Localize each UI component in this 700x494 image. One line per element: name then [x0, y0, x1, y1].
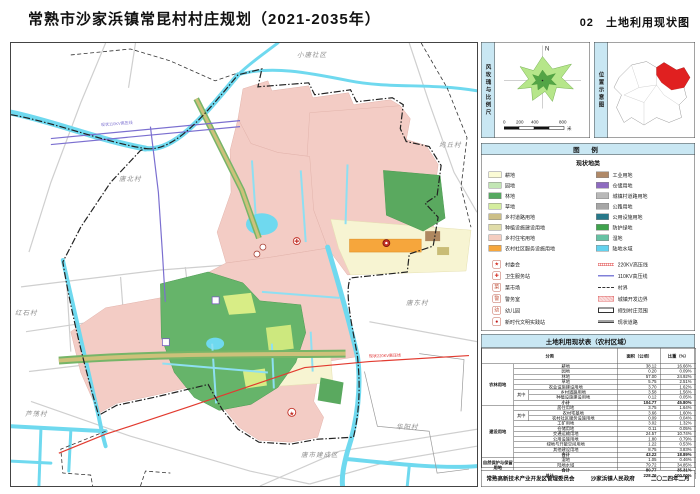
legend-marker-item: ✚ 卫生服务站 [493, 270, 546, 282]
legend-swatch [489, 193, 502, 200]
legend-line-symbol [598, 308, 614, 314]
wind-rose: N [495, 43, 590, 116]
legend-line-item: 城镇开发边界 [598, 293, 688, 305]
legend-marker-label: 警务室 [505, 295, 520, 303]
map-label: 唐市建成区 [301, 449, 339, 459]
legend-swatch [596, 214, 609, 221]
legend-item: 种植设施建设用地 [489, 222, 581, 233]
legend-line-label: 规划村庄范围 [618, 307, 648, 315]
sidebar: 风玫瑰与比例尺 N 0 200 400 [481, 42, 695, 488]
legend-item-label: 耕地 [505, 171, 515, 179]
legend-line-symbol [598, 275, 614, 277]
windrose-panel-label: 风玫瑰与比例尺 [482, 43, 496, 138]
legend-marker-icon: ★ [493, 260, 502, 269]
legend-marker-label: 卫生服务站 [505, 272, 530, 280]
legend-swatch [596, 235, 609, 242]
legend-item-label: 防护绿地 [612, 224, 632, 232]
legend-line-item: 220KV高压线 [598, 259, 688, 271]
plan-sheet: 常熟市沙家浜镇常昆村村庄规划（2021-2035年） 02 土地利用现状图 [0, 0, 700, 494]
legend-item-label: 陆地水域 [612, 245, 632, 253]
legend-item: 防护绿地 [596, 222, 688, 233]
legend-line-label: 现状道路 [618, 318, 638, 326]
windrose-panel: 风玫瑰与比例尺 N 0 200 400 [481, 42, 590, 138]
legend-marker-item: ★ 村委会 [493, 259, 546, 271]
legend-item: 陆地水域 [596, 243, 688, 254]
legend-swatch [489, 245, 502, 252]
legend-item: 乡村住宅用地 [489, 233, 581, 244]
location-map [609, 48, 694, 133]
landuse-table-title: 土地利用现状表（农村区域） [482, 335, 695, 349]
legend-swatch [489, 214, 502, 221]
footer-date: 二〇二四年二月 [651, 475, 690, 483]
map-label: 小唐社区 [297, 49, 327, 59]
landuse-legend-right: 工业用地 仓储用地 城镇村道路用地 公路用地 [596, 170, 688, 254]
legend-line-symbol [598, 321, 614, 324]
map-label: 现状110KV高压线 [101, 120, 133, 128]
legend-line-label: 城镇开发边界 [618, 295, 648, 303]
landuse-table: 分类面积（公顷）比重（%）农林用地耕地38.1216.66%园地0.200.09… [482, 348, 697, 478]
map-label: 华阳村 [396, 421, 419, 431]
scale-tick-0: 0 [503, 120, 506, 125]
landuse-legend-left: 耕地 园地 林地 草地 [489, 170, 581, 254]
marker-legend: ★ 村委会 ✚ 卫生服务站 菜 菜市场 警 警务室 [493, 259, 546, 328]
legend-swatch [489, 224, 502, 231]
legend-swatch [489, 235, 502, 242]
sheet-name: 土地利用现状图 [606, 17, 690, 29]
legend-marker-label: 新时代文明实践站 [505, 318, 545, 326]
legend-item: 草地 [489, 201, 581, 212]
legend-item-label: 湿地 [612, 234, 622, 242]
legend-item: 林地 [489, 191, 581, 202]
legend-item: 公用设施用地 [596, 212, 688, 223]
legend-line-label: 110KV高压线 [618, 272, 648, 280]
legend-item: 乡村道路用地 [489, 212, 581, 223]
legend-item: 公路用地 [596, 201, 688, 212]
legend-line-symbol [598, 287, 614, 288]
legend-marker-icon: 警 [493, 295, 502, 304]
map-labels: 小唐社区坞丘村唐北村红石村唐东村华阳村芦荡村唐市建成区现状110KV高压线现状2… [11, 43, 477, 486]
legend-item-label: 公用设施用地 [612, 213, 642, 221]
north-label: N [545, 47, 549, 53]
legend-marker-item: 警 警务室 [493, 293, 546, 305]
sheet-number-title: 02 土地利用现状图 [572, 14, 690, 30]
legend-marker-icon: ✚ [493, 272, 502, 281]
legend-swatch [489, 182, 502, 189]
legend-line-label: 220KV高压线 [618, 261, 648, 269]
landuse-legend-title: 现状地类 [482, 159, 695, 168]
landuse-table-panel: 土地利用现状表（农村区域） 分类面积（公顷）比重（%）农林用地耕地38.1216… [481, 334, 695, 468]
legend-item-label: 乡村道路用地 [505, 213, 535, 221]
legend-line-item: 规划村庄范围 [598, 305, 688, 317]
legend-panel: 图 例 现状地类 耕地 园地 林地 [481, 143, 695, 331]
legend-swatch [489, 172, 502, 179]
legend-marker-item: 菜 菜市场 [493, 282, 546, 294]
legend-item-label: 城镇村道路用地 [612, 192, 647, 200]
legend-item: 工业用地 [596, 170, 688, 181]
legend-item-label: 草地 [505, 203, 515, 211]
legend-marker-label: 菜市场 [505, 284, 520, 292]
sheet-number: 02 [580, 17, 594, 29]
map-label: 芦荡村 [25, 408, 48, 418]
legend-swatch [596, 245, 609, 252]
legend-marker-icon: ● [493, 318, 502, 327]
scale-unit: 米 [567, 125, 572, 132]
scale-bar: 0 200 400 800 米 [495, 118, 590, 138]
legend-swatch [489, 203, 502, 210]
legend-swatch [596, 193, 609, 200]
legend-swatch [596, 172, 609, 179]
legend-marker-label: 幼儿园 [505, 307, 520, 315]
legend-line-symbol [598, 296, 614, 302]
legend-item-label: 林地 [505, 192, 515, 200]
legend-line-label: 村界 [618, 284, 628, 292]
map-canvas[interactable]: ★ 小唐社区坞丘村唐北村红石村唐东村华阳村芦荡村唐市建成区现状110KV高压线现… [10, 42, 478, 487]
legend-item-label: 园地 [505, 182, 515, 190]
legend-line-item: 村界 [598, 282, 688, 294]
footer-bar: 常熟高新技术产业开发区管理委员会 沙家浜镇人民政府 二〇二四年二月 [481, 470, 695, 487]
map-label: 唐东村 [406, 297, 429, 307]
footer-org1: 常熟高新技术产业开发区管理委员会 [487, 475, 575, 483]
legend-marker-item: 幼 幼儿园 [493, 305, 546, 317]
legend-marker-icon: 幼 [493, 306, 502, 315]
location-panel-label: 位置示意图 [595, 43, 609, 138]
legend-item: 湿地 [596, 233, 688, 244]
legend-swatch [596, 224, 609, 231]
page-title: 常熟市沙家浜镇常昆村村庄规划（2021-2035年） [28, 8, 381, 29]
location-panel: 位置示意图 [594, 42, 695, 138]
legend-item: 城镇村道路用地 [596, 191, 688, 202]
legend-marker-item: ● 新时代文明实践站 [493, 316, 546, 328]
map-label: 唐北村 [119, 173, 142, 183]
legend-item-label: 仓储用地 [612, 182, 632, 190]
scale-tick-800: 800 [559, 120, 567, 125]
map-label: 坞丘村 [439, 139, 462, 149]
line-legend: 220KV高压线 110KV高压线 村界 城镇开发边界 [598, 259, 688, 328]
legend-item-label: 乡村住宅用地 [505, 234, 535, 242]
footer-org2: 沙家浜镇人民政府 [591, 475, 635, 483]
legend-title: 图 例 [482, 144, 695, 156]
legend-line-item: 110KV高压线 [598, 270, 688, 282]
legend-item: 农村社区服务设施用地 [489, 243, 581, 254]
legend-swatch [596, 182, 609, 189]
map-label: 红石村 [15, 307, 38, 317]
legend-item-label: 公路用地 [612, 203, 632, 211]
legend-swatch [596, 203, 609, 210]
scale-tick-200: 200 [516, 120, 524, 125]
legend-marker-icon: 菜 [493, 283, 502, 292]
legend-item-label: 种植设施建设用地 [505, 224, 545, 232]
legend-line-item: 现状道路 [598, 316, 688, 328]
legend-item: 耕地 [489, 170, 581, 181]
map-label: 现状220KV高压线 [369, 352, 401, 359]
legend-item-label: 农村社区服务设施用地 [505, 245, 555, 253]
scale-tick-400: 400 [531, 120, 539, 125]
legend-line-symbol [598, 263, 614, 266]
legend-item: 仓储用地 [596, 180, 688, 191]
legend-item-label: 工业用地 [612, 171, 632, 179]
legend-marker-label: 村委会 [505, 261, 520, 269]
legend-item: 园地 [489, 180, 581, 191]
